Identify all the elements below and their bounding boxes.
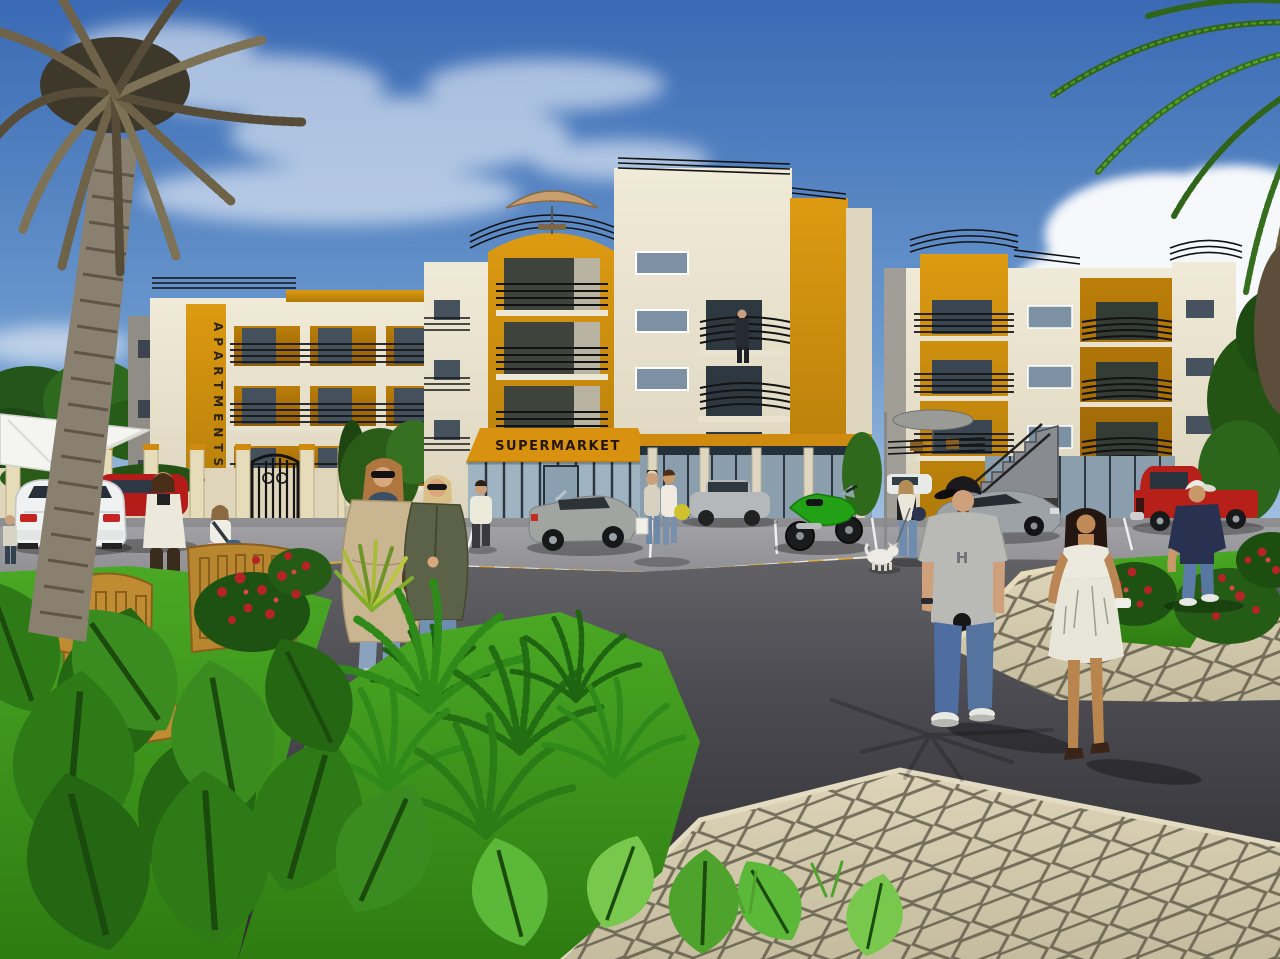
lamp-pole xyxy=(884,412,887,548)
center-windows xyxy=(636,252,688,390)
right-center-windows xyxy=(1028,306,1072,448)
tshirt-graphic: H xyxy=(956,549,969,567)
supermarket-sign: SUPERMARKET xyxy=(495,439,621,454)
apartments-sign: APARTMENTS xyxy=(211,322,225,472)
tower-balcony-openings xyxy=(496,258,608,444)
architectural-rendering-scene: APARTMENTS xyxy=(0,0,1280,959)
